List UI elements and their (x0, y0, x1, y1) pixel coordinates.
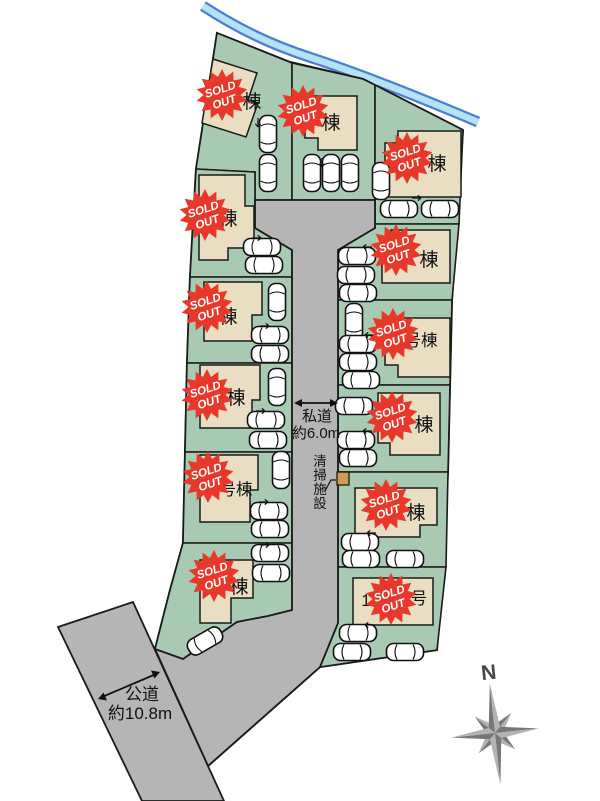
cleaning-facility-label: 設 (313, 496, 327, 511)
car-icon (253, 565, 290, 582)
car-icon (340, 285, 377, 302)
car-icon (252, 346, 289, 363)
car-icon (251, 503, 288, 520)
car-icon (260, 155, 277, 192)
car-icon (342, 534, 379, 551)
car-icon (269, 369, 286, 406)
car-icon (252, 545, 289, 562)
car-icon (334, 644, 371, 661)
car-icon (336, 398, 373, 415)
lot-map-plan: 棟 棟 棟 棟 棟 棟 号棟 棟 棟 号 (0, 0, 600, 801)
public-road-name: 公道 (125, 685, 159, 704)
public-road-width: 約10.8m (108, 704, 172, 723)
cleaning-facility-label: 掃 (313, 467, 327, 483)
car-icon (381, 201, 418, 218)
private-road-width: 約6.0m (292, 425, 340, 442)
car-icon (342, 155, 359, 192)
car-icon (343, 372, 380, 389)
car-icon (387, 551, 424, 568)
lot-label: 棟 (406, 502, 425, 524)
car-icon (269, 284, 286, 321)
car-icon (422, 201, 459, 218)
car-icon (338, 267, 375, 284)
car-icon (343, 551, 380, 568)
car-icon (339, 248, 376, 265)
car-icon (373, 163, 390, 200)
car-icon (340, 625, 377, 642)
car-icon (304, 155, 321, 192)
site-plan-svg: 棟 棟 棟 棟 棟 棟 号棟 棟 棟 号 (0, 0, 600, 801)
car-icon (252, 327, 289, 344)
car-icon (340, 354, 377, 371)
car-icon (340, 450, 377, 467)
car-icon (250, 432, 287, 449)
car-icon (387, 644, 424, 661)
car-icon (246, 257, 283, 274)
car-icon (248, 412, 285, 429)
car-icon (260, 116, 277, 153)
car-icon (338, 432, 375, 449)
lot-label: 棟 (419, 249, 438, 271)
lot-label: 棟 (242, 91, 261, 113)
car-icon (273, 452, 290, 489)
car-icon (244, 239, 281, 256)
north-label: N (480, 661, 497, 685)
private-road-name: 私道 (302, 408, 332, 425)
car-icon (323, 155, 340, 192)
compass-rose: N (444, 657, 544, 790)
lot-label: 棟 (414, 414, 433, 436)
cleaning-facility-marker (337, 472, 349, 485)
cleaning-facility-label: 清 (313, 454, 327, 469)
car-icon (252, 521, 289, 538)
